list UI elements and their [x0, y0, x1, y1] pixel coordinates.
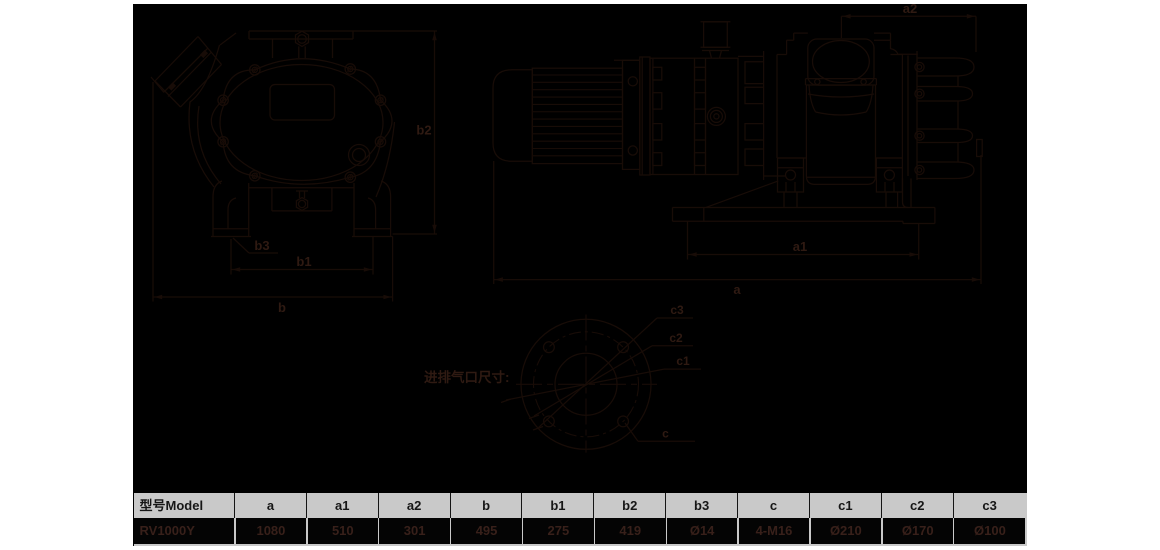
svg-text:a: a	[733, 282, 741, 297]
svg-text:c3: c3	[670, 303, 684, 317]
svg-text:b1: b1	[296, 254, 311, 269]
svg-text:进排气口尺寸:: 进排气口尺寸:	[424, 369, 510, 385]
svg-text:b2: b2	[416, 123, 431, 138]
svg-text:c: c	[662, 427, 669, 441]
svg-text:c1: c1	[676, 354, 690, 368]
svg-text:a1: a1	[793, 239, 807, 254]
svg-text:c2: c2	[669, 331, 683, 345]
svg-text:a2: a2	[903, 1, 917, 16]
svg-text:b: b	[278, 300, 286, 315]
svg-text:b3: b3	[254, 238, 269, 253]
